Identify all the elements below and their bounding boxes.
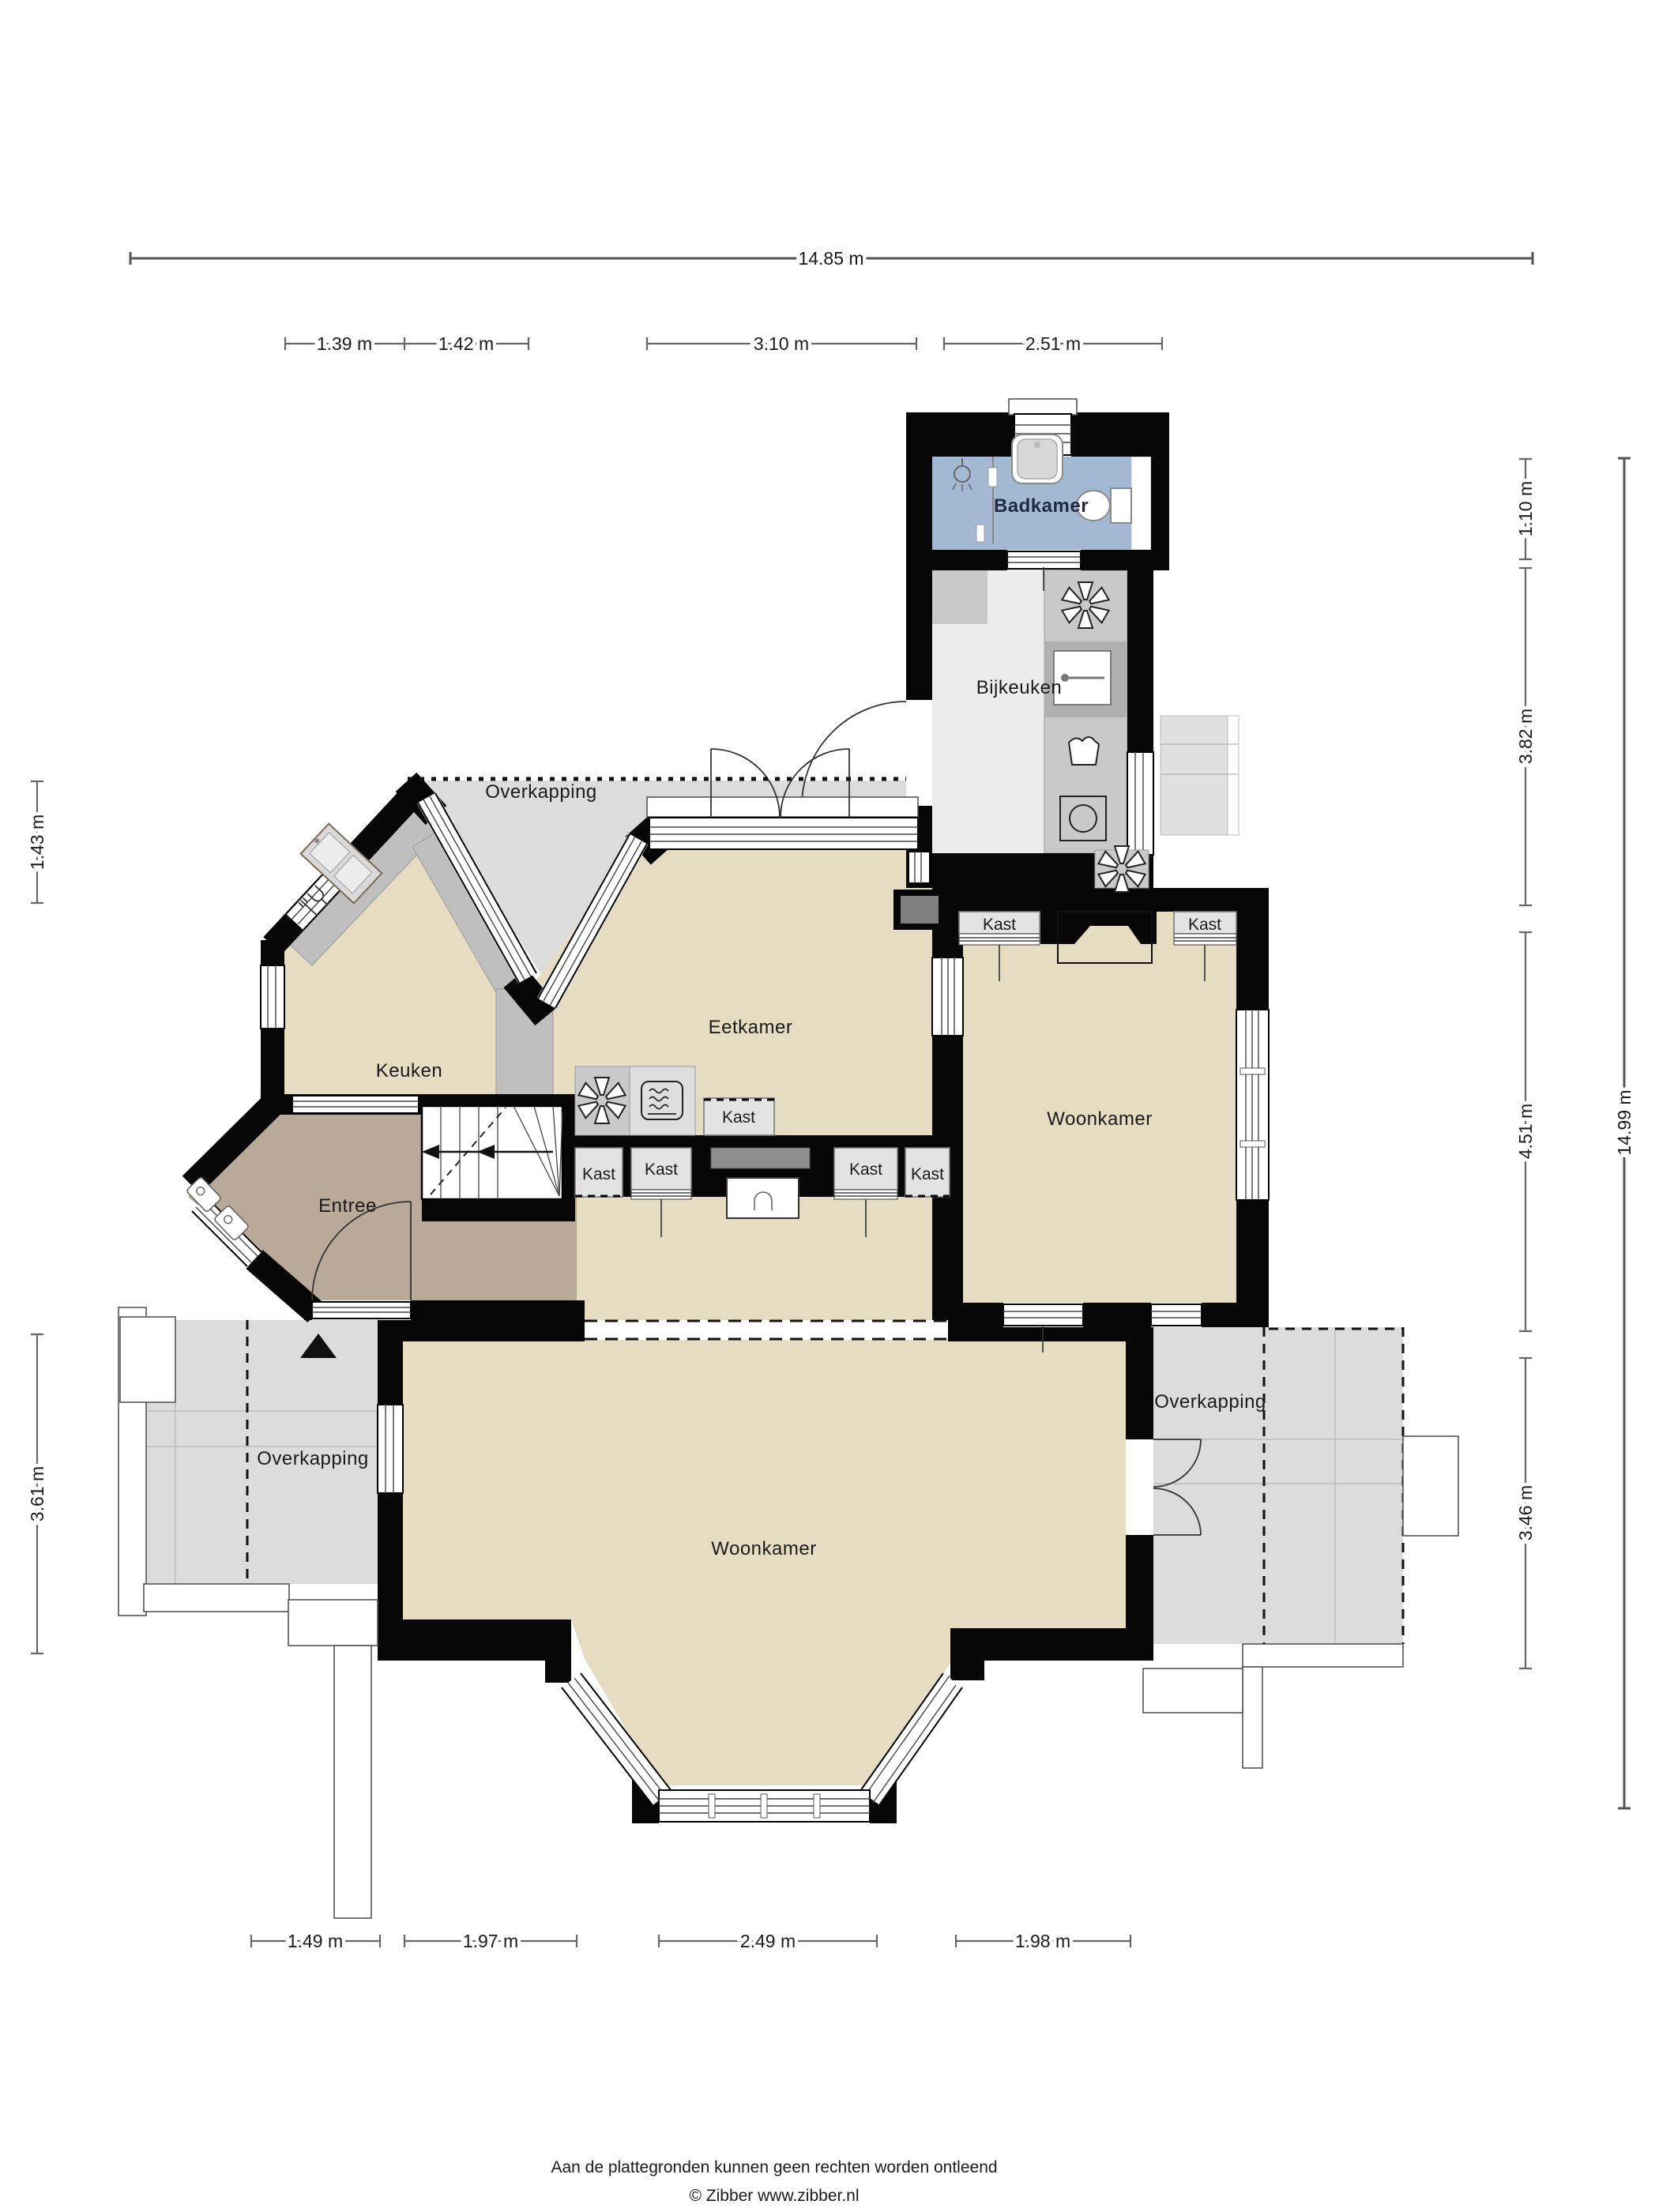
label-overkapping-zo: Overkapping [1154,1391,1266,1413]
room-woonkamer-beneden [403,1341,1126,1785]
badkamer-recess [1131,457,1151,550]
footer: Aan de plattegronden kunnen geen rechten… [551,2158,997,2205]
dim-bottom-1: 1.97 m [463,1931,518,1951]
hall-counter [711,1148,810,1168]
room-overkapping-zuidoost [1153,1327,1403,1644]
dim-bottom-0: 1.49 m [288,1931,343,1951]
room-woonkamer-boven [963,912,1236,1303]
terrace-north-east [1161,716,1228,835]
bathtub-icon [1012,434,1063,483]
dim-bottom-2: 2.49 m [740,1931,796,1951]
footer-disclaimer: Aan de plattegronden kunnen geen rechten… [551,2158,997,2176]
terrace-rim [1228,716,1239,835]
terrace-doors [1126,1441,1153,1533]
label-kast-d: Kast [911,1165,944,1183]
dim-top-1: 1.42 m [438,333,494,354]
dim-top-0: 1.39 m [317,333,372,354]
label-kast-b: Kast [645,1161,678,1179]
eetkamer-window-band [649,818,918,849]
dim-bottom-3: 1.98 m [1015,1931,1070,1951]
shower-screen-handle [988,468,997,487]
laundry-icon [1069,737,1099,765]
label-kast-top: Kast [722,1108,755,1127]
open-passage [585,1320,948,1340]
dim-top-total: 14.85 m [798,248,863,269]
label-kast-wk-right: Kast [1188,916,1221,934]
label-badkamer: Badkamer [994,495,1089,517]
label-kast-wk-left: Kast [983,916,1016,934]
label-keuken: Keuken [376,1060,442,1082]
dim-top-2: 3.10 m [754,333,809,354]
footer-copyright: © Zibber www.zibber.nl [689,2187,859,2205]
label-eetkamer: Eetkamer [709,1017,793,1038]
utility-corner-counter [932,570,987,624]
label-overkapping-noord: Overkapping [485,781,597,803]
dim-top-3: 2.51 m [1025,333,1081,354]
stairs [422,1106,562,1199]
dim-right-total: 14.99 m [1614,1089,1635,1155]
label-kast-a: Kast [582,1165,615,1183]
dim-right-2: 4.51 m [1515,1104,1536,1159]
label-woonkamer: Woonkamer [711,1538,816,1559]
label-bijkeuken: Bijkeuken [976,677,1063,698]
dim-right-3: 3.46 m [1515,1485,1536,1540]
dim-left-1: 3.61 m [27,1466,47,1522]
sink-icon [1054,651,1111,705]
floor-plan-canvas: Badkamer Bijkeuken Eetkamer Keuken Woonk… [0,0,1659,2212]
dim-right-0: 1.10 m [1515,481,1536,536]
label-woonkamer-boven: Woonkamer [1047,1108,1152,1130]
label-entree: Entree [318,1195,377,1217]
niche [727,1178,799,1218]
label-kast-c: Kast [849,1161,882,1179]
dim-right-1: 3.82 m [1515,709,1536,764]
bijkeuken-door [906,702,932,806]
front-door [312,1302,411,1319]
dim-left-0: 1.43 m [27,814,47,870]
label-overkapping-zw: Overkapping [257,1448,369,1469]
